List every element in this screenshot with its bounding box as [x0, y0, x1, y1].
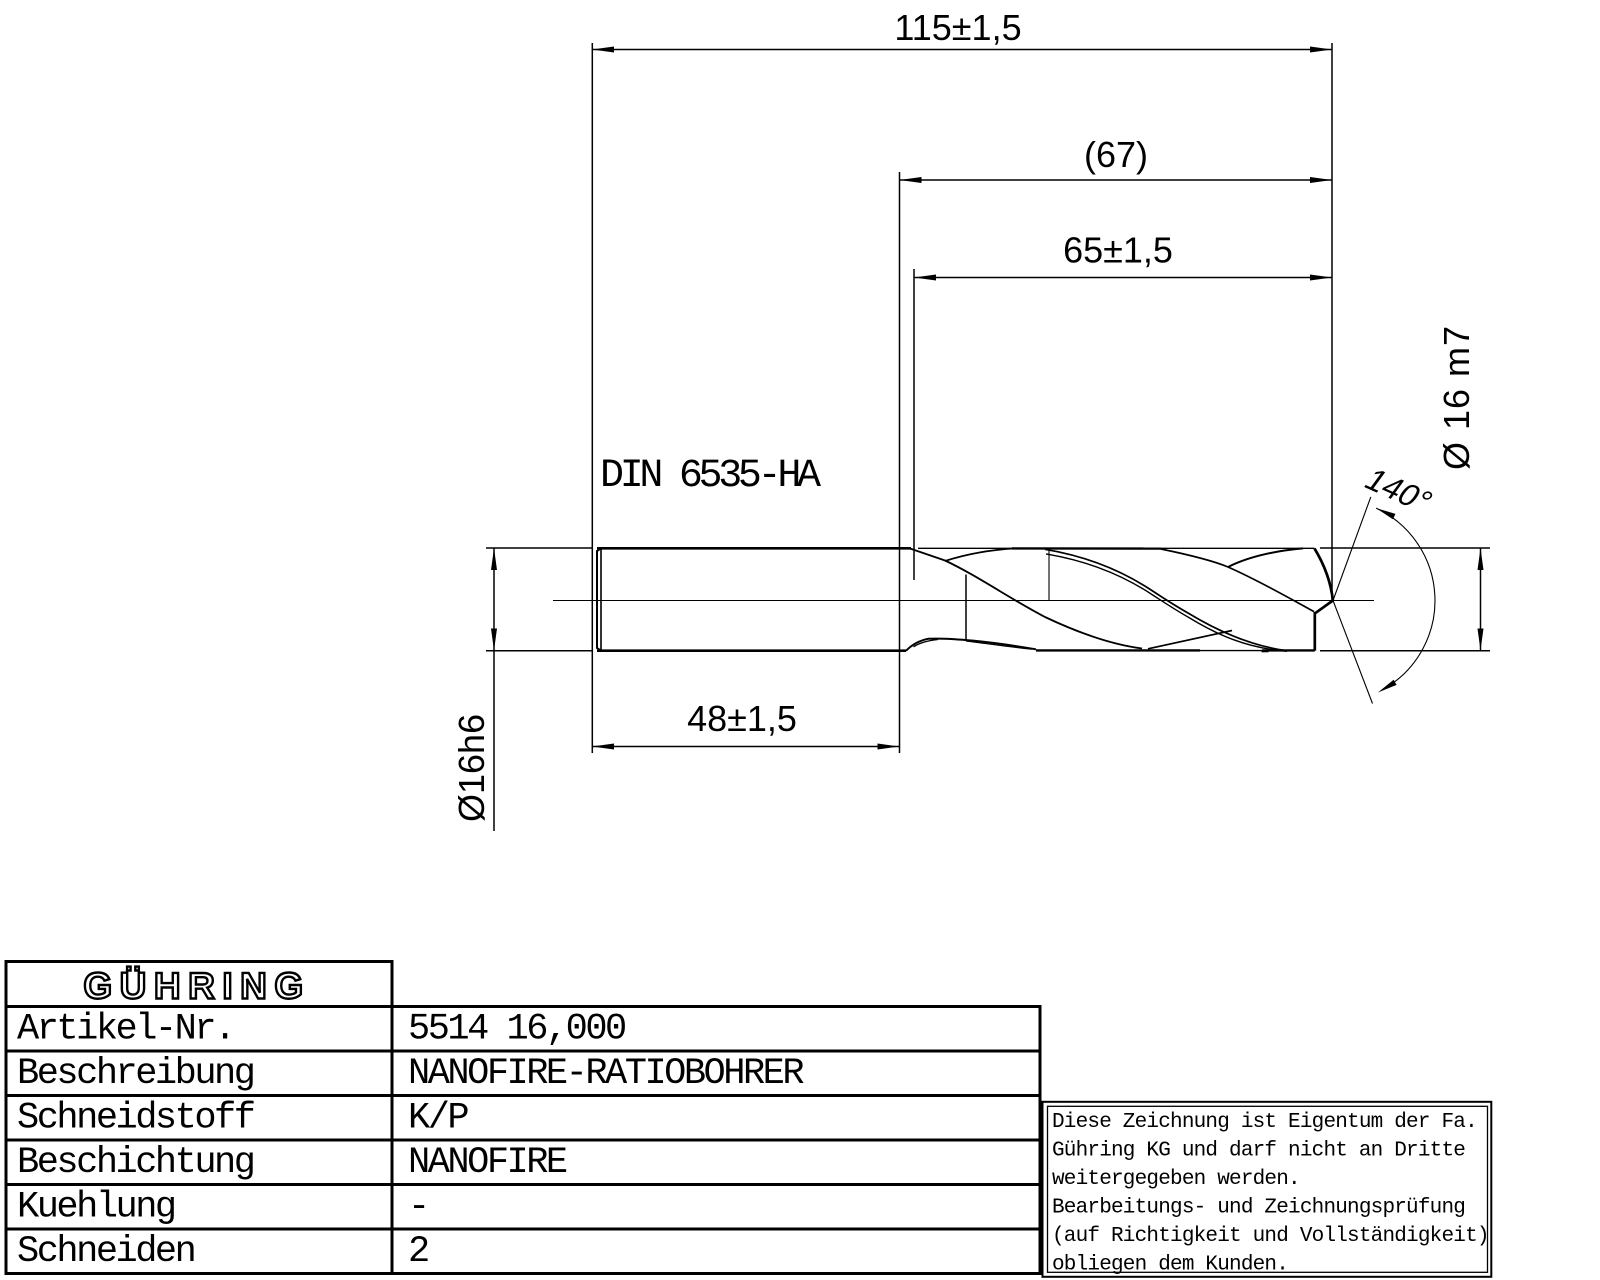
svg-text:NANOFIRE: NANOFIRE	[408, 1142, 567, 1184]
svg-text:115±1,5: 115±1,5	[894, 7, 1021, 48]
svg-text:-: -	[408, 1187, 428, 1229]
svg-text:Diese Zeichnung ist Eigentum d: Diese Zeichnung ist Eigentum der Fa.	[1052, 1111, 1477, 1134]
svg-text:Kuehlung: Kuehlung	[17, 1187, 175, 1229]
svg-text:(auf Richtigkeit und Vollständ: (auf Richtigkeit und Vollständigkeit)	[1052, 1225, 1489, 1248]
svg-text:Ø 16 m7: Ø 16 m7	[1436, 325, 1477, 470]
svg-text:weitergegeben werden.: weitergegeben werden.	[1052, 1168, 1300, 1191]
svg-text:Beschichtung: Beschichtung	[17, 1142, 254, 1184]
svg-text:DIN 6535-HA: DIN 6535-HA	[600, 454, 821, 499]
svg-text:Schneidstoff: Schneidstoff	[17, 1098, 254, 1140]
svg-text:Bearbeitungs- und Zeichnungspr: Bearbeitungs- und Zeichnungsprüfung	[1052, 1197, 1465, 1220]
svg-text:Beschreibung: Beschreibung	[17, 1053, 254, 1095]
svg-text:GÜHRING: GÜHRING	[83, 966, 310, 1007]
svg-text:Schneiden: Schneiden	[17, 1231, 194, 1273]
svg-text:Gühring KG und darf nicht an D: Gühring KG und darf nicht an Dritte	[1052, 1140, 1465, 1163]
svg-text:(67): (67)	[1084, 134, 1148, 175]
svg-text:48±1,5: 48±1,5	[687, 698, 797, 739]
svg-text:obliegen dem Kunden.: obliegen dem Kunden.	[1052, 1254, 1288, 1277]
svg-text:5514 16,000: 5514 16,000	[408, 1009, 625, 1051]
svg-text:2: 2	[408, 1231, 428, 1273]
svg-text:NANOFIRE-RATIOBOHRER: NANOFIRE-RATIOBOHRER	[408, 1053, 804, 1095]
svg-text:K/P: K/P	[408, 1098, 468, 1140]
svg-text:65±1,5: 65±1,5	[1063, 230, 1173, 271]
svg-text:Artikel-Nr.: Artikel-Nr.	[17, 1009, 234, 1051]
svg-text:Ø16h6: Ø16h6	[451, 714, 492, 822]
